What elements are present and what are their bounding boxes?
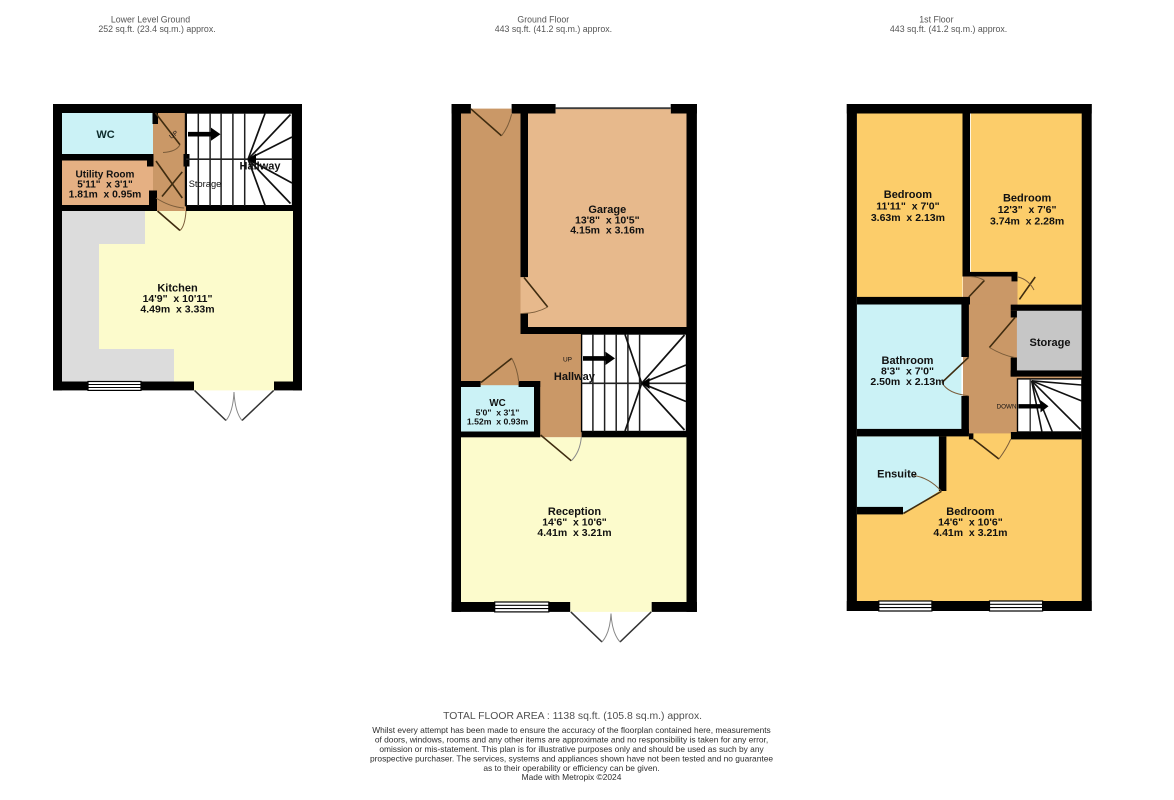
svg-text:Ground Floor: Ground Floor: [517, 15, 569, 25]
svg-text:4.41m x 3.21m: 4.41m x 3.21m: [933, 527, 1007, 539]
svg-text:1.52m x 0.93m: 1.52m x 0.93m: [467, 417, 529, 427]
svg-text:11'11" x 7'0": 11'11" x 7'0": [876, 201, 939, 213]
svg-text:12'3" x 7'6": 12'3" x 7'6": [998, 204, 1057, 216]
svg-text:252 sq.ft. (23.4 sq.m.) approx: 252 sq.ft. (23.4 sq.m.) approx.: [98, 24, 215, 34]
svg-text:1.81m x 0.95m: 1.81m x 0.95m: [69, 190, 142, 201]
svg-text:4.49m x 3.33m: 4.49m x 3.33m: [140, 304, 214, 316]
svg-text:Ensuite: Ensuite: [877, 469, 917, 481]
svg-text:Hallway: Hallway: [240, 161, 282, 173]
svg-text:443 sq.ft. (41.2 sq.m.) approx: 443 sq.ft. (41.2 sq.m.) approx.: [495, 24, 612, 34]
svg-text:DOWN: DOWN: [997, 404, 1017, 411]
svg-text:4.15m x 3.16m: 4.15m x 3.16m: [570, 225, 644, 237]
svg-text:2.50m x 2.13m: 2.50m x 2.13m: [870, 376, 944, 388]
svg-text:TOTAL FLOOR AREA : 1138 sq.ft.: TOTAL FLOOR AREA : 1138 sq.ft. (105.8 sq…: [443, 711, 702, 722]
svg-text:Lower Level Ground: Lower Level Ground: [111, 15, 190, 25]
svg-text:3.74m x 2.28m: 3.74m x 2.28m: [990, 216, 1064, 228]
svg-text:Bedroom: Bedroom: [1003, 192, 1052, 204]
svg-text:1st Floor: 1st Floor: [919, 15, 953, 25]
svg-text:Storage: Storage: [1030, 337, 1071, 349]
svg-text:4.41m x 3.21m: 4.41m x 3.21m: [537, 527, 611, 539]
svg-text:WC: WC: [96, 129, 114, 141]
svg-text:Made with Metropix ©2024: Made with Metropix ©2024: [522, 772, 622, 782]
svg-text:Bedroom: Bedroom: [884, 189, 933, 201]
svg-text:Hallway: Hallway: [554, 371, 596, 383]
svg-text:3.63m x 2.13m: 3.63m x 2.13m: [871, 212, 945, 224]
svg-text:UP: UP: [563, 356, 572, 363]
svg-text:443 sq.ft. (41.2 sq.m.) approx: 443 sq.ft. (41.2 sq.m.) approx.: [890, 24, 1007, 34]
svg-text:Storage: Storage: [189, 179, 222, 189]
